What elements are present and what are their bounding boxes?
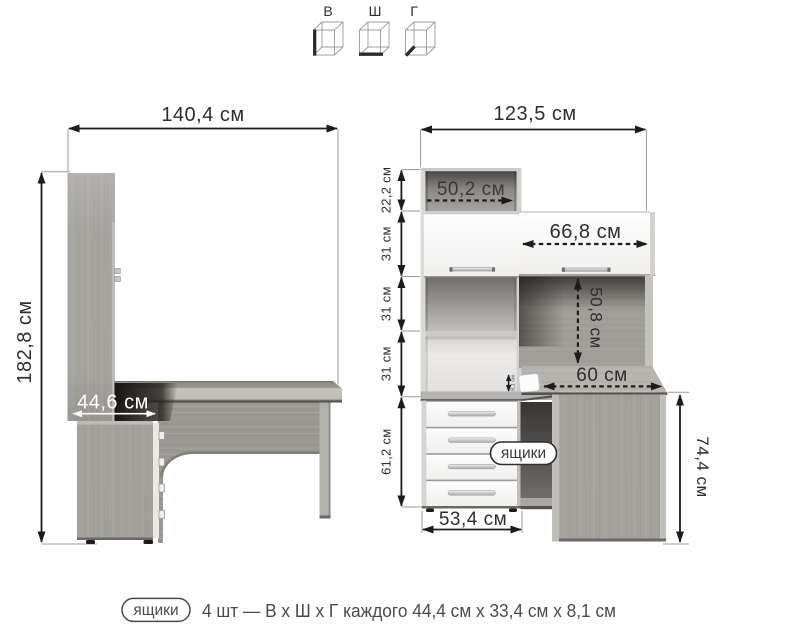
svg-text:182,8 см: 182,8 см — [14, 300, 36, 383]
svg-text:22,2 см: 22,2 см — [379, 167, 394, 213]
svg-text:Ш: Ш — [369, 3, 382, 19]
svg-text:4 шт — В х Ш х Г каждого 44,4: 4 шт — В х Ш х Г каждого 44,4 см х 33,4 … — [202, 601, 616, 621]
svg-text:123,5 см: 123,5 см — [493, 103, 576, 125]
svg-text:44,6 см: 44,6 см — [77, 392, 149, 414]
svg-text:8,1 см: 8,1 см — [511, 375, 517, 391]
svg-text:Г: Г — [410, 3, 418, 19]
svg-text:50,8 см: 50,8 см — [587, 287, 606, 349]
svg-text:ящики: ящики — [133, 602, 178, 619]
svg-text:В: В — [323, 3, 332, 19]
svg-text:60 см: 60 см — [576, 365, 627, 386]
svg-text:74,4 см: 74,4 см — [693, 436, 712, 498]
svg-text:31 см: 31 см — [379, 346, 394, 381]
svg-text:66,8 см: 66,8 см — [550, 221, 622, 243]
svg-text:140,4 см: 140,4 см — [161, 104, 244, 126]
svg-text:53,4 см: 53,4 см — [439, 509, 507, 530]
svg-text:61,2 см: 61,2 см — [379, 428, 394, 474]
svg-text:31 см: 31 см — [379, 286, 394, 321]
svg-text:ящики: ящики — [501, 445, 546, 462]
svg-text:31 см: 31 см — [379, 226, 394, 261]
svg-text:50,2 см: 50,2 см — [437, 179, 505, 200]
